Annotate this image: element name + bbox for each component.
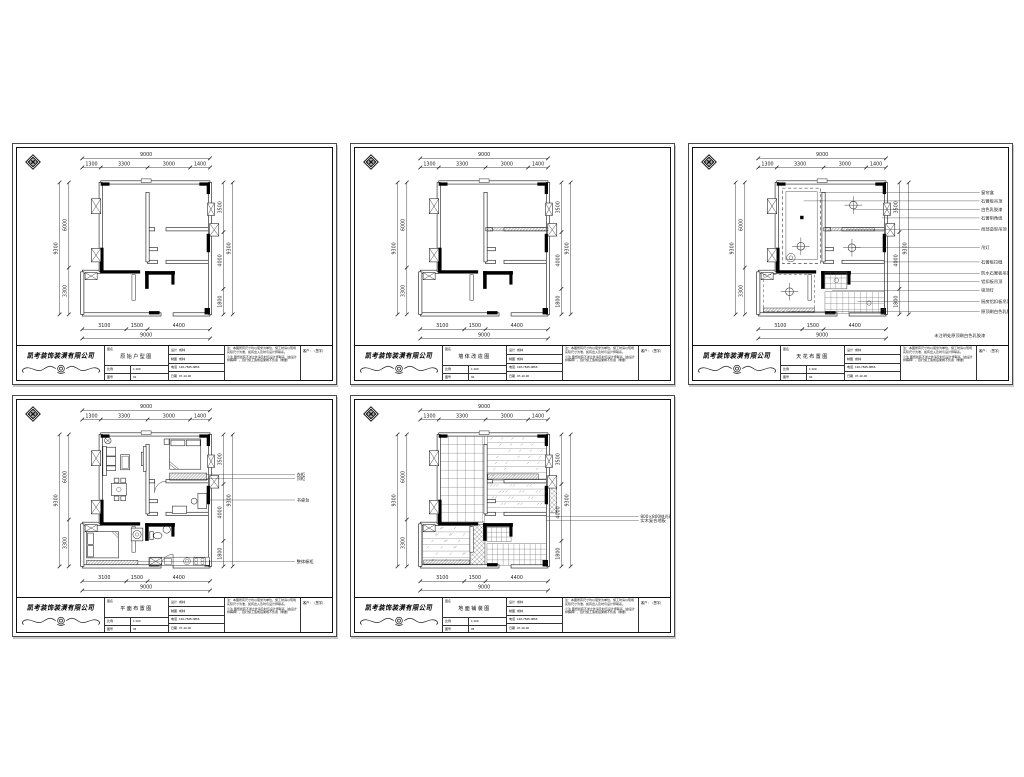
sheet-no-value: 01 [131, 374, 168, 381]
date-value: 07-10-30 [179, 374, 191, 378]
svg-text:9300: 9300 [53, 242, 59, 254]
date-label: 日期 [509, 374, 515, 378]
info-fields-cell: 设计成林 制图成林 电话130-7845-0866 日期07-10-30 [507, 346, 563, 380]
svg-text:1400: 1400 [532, 413, 544, 419]
note-line-2: ※注 图纸如有不详之处请及时与设计师联系（由设计师解释），自行施工造成后果概不负… [227, 356, 298, 364]
drawing-title: 天花布置图 [781, 353, 844, 360]
drawing-sheet-2: 1300330030001400900031001500440090006000… [350, 143, 675, 385]
svg-text:4000: 4000 [893, 254, 899, 266]
svg-text:4400: 4400 [173, 575, 185, 581]
phone-value: 130-7845-0866 [179, 365, 199, 369]
svg-text:3000: 3000 [501, 161, 513, 167]
svg-text:整体橱柜: 整体橱柜 [297, 558, 315, 565]
company-name: 凯考装饰装潢有限公司 [365, 603, 433, 613]
sheet-inner-frame: 1300330030001400900031001500440090006000… [354, 147, 671, 381]
svg-text:3300: 3300 [739, 285, 745, 297]
phone-label: 电话 [171, 617, 177, 621]
sheet-no-label: 图号 [105, 374, 131, 381]
sheet-no-value: 05 [469, 626, 506, 633]
svg-text:9300: 9300 [391, 242, 397, 254]
client-sign-cell: 客户：（签字） [977, 346, 1008, 380]
phone-label: 电话 [509, 365, 515, 369]
svg-text:800×800抛光砖: 800×800抛光砖 [640, 513, 670, 520]
client-sign-cell: 客户：（签字） [301, 598, 332, 632]
flourish-ornament-icon [358, 614, 440, 628]
designer-label: 设计 [171, 600, 177, 604]
scale-label: 比例 [105, 618, 131, 625]
svg-text:白色乳胶漆: 白色乳胶漆 [981, 206, 1003, 213]
svg-text:3500: 3500 [217, 453, 223, 465]
scale-value: 1:100 [469, 618, 506, 625]
svg-text:防水石膏板吊顶: 防水石膏板吊顶 [981, 270, 1008, 277]
svg-text:局部造型吊顶: 局部造型吊顶 [981, 226, 1007, 233]
company-cell: 凯考装饰装潢有限公司 [17, 598, 105, 632]
svg-text:9300: 9300 [903, 242, 909, 254]
designer-value: 成林 [517, 600, 523, 604]
svg-text:4400: 4400 [173, 323, 185, 329]
svg-text:1400: 1400 [194, 413, 206, 419]
drawing-name-label: 图名 [107, 599, 113, 603]
svg-text:1800: 1800 [217, 296, 223, 308]
svg-text:6000: 6000 [63, 219, 69, 231]
notes-cell: 注：本图所有尺寸均以毫米为单位，施工时请以现场实际尺寸为准，如有出入及时与设计师… [563, 598, 639, 632]
note-line-2: ※注 图纸如有不详之处请及时与设计师联系（由设计师解释），自行施工造成后果概不负… [565, 356, 636, 364]
info-fields-cell: 设计成林 制图成林 电话130-7845-0866 日期07-10-30 [169, 598, 225, 632]
svg-text:9000: 9000 [478, 584, 490, 590]
drawing-name-label: 图名 [445, 347, 451, 351]
note-line-2: ※注 图纸如有不详之处请及时与设计师联系（由设计师解释），自行施工造成后果概不负… [903, 356, 974, 364]
flourish-ornament-icon [358, 362, 440, 376]
designer-value: 成林 [855, 348, 861, 352]
scale-label: 比例 [105, 366, 131, 373]
date-value: 07-10-30 [517, 374, 529, 378]
title-block: 凯考装饰装潢有限公司 图名 [17, 345, 332, 380]
drawing-title: 原始户型图 [105, 353, 168, 360]
drawing-name-cell: 图名 天花布置图 比例 1:100 图号 03 [781, 346, 845, 380]
drafter-label: 制图 [171, 357, 177, 361]
svg-text:3300: 3300 [456, 161, 468, 167]
svg-text:铝扣板吊顶: 铝扣板吊顶 [981, 278, 1003, 285]
svg-text:9000: 9000 [478, 404, 490, 410]
drafter-value: 成林 [179, 357, 185, 361]
company-cell: 凯考装饰装潢有限公司 [17, 346, 105, 380]
drawing-name-label: 图名 [107, 347, 113, 351]
client-sign-cell: 客户：（签字） [639, 346, 670, 380]
svg-text:原顶刷白色乳胶漆: 原顶刷白色乳胶漆 [981, 308, 1008, 315]
svg-text:1800: 1800 [555, 548, 561, 560]
drawing-name-cell: 图名 原始户型图 比例 1:100 图号 01 [105, 346, 169, 380]
sheet-inner-frame: 1300330030001400900031001500440090006000… [16, 147, 333, 381]
svg-text:石膏板拉缝: 石膏板拉缝 [981, 258, 1003, 265]
drawing-sheet-1: 1300330030001400900031001500440090006000… [12, 143, 337, 385]
company-name: 凯考装饰装潢有限公司 [27, 603, 95, 613]
svg-text:3300: 3300 [63, 285, 69, 297]
svg-text:3100: 3100 [774, 323, 786, 329]
svg-text:3000: 3000 [163, 161, 175, 167]
svg-text:1300: 1300 [423, 161, 435, 167]
svg-text:1300: 1300 [761, 161, 773, 167]
phone-value: 130-7845-0866 [517, 617, 537, 621]
title-block: 凯考装饰装潢有限公司 图名 [355, 345, 670, 380]
svg-text:9300: 9300 [565, 494, 571, 506]
scale-label: 比例 [781, 366, 807, 373]
drawing-title: 地面铺装图 [443, 605, 506, 612]
notes-cell: 注：本图所有尺寸均以毫米为单位，施工时请以现场实际尺寸为准，如有出入及时与设计师… [225, 598, 301, 632]
svg-text:石膏板吊顶: 石膏板吊顶 [981, 197, 1003, 204]
svg-text:1800: 1800 [217, 548, 223, 560]
drawing-set-canvas: 1300330030001400900031001500440090006000… [0, 0, 1024, 777]
svg-text:3500: 3500 [555, 201, 561, 213]
company-name: 凯考装饰装潢有限公司 [703, 351, 771, 361]
svg-text:1500: 1500 [807, 323, 819, 329]
phone-label: 电话 [509, 617, 515, 621]
scale-value: 1:100 [131, 366, 168, 373]
scale-value: 1:100 [469, 366, 506, 373]
svg-text:9300: 9300 [391, 494, 397, 506]
designer-value: 成林 [517, 348, 523, 352]
date-label: 日期 [847, 374, 853, 378]
phone-label: 电话 [171, 365, 177, 369]
svg-text:9300: 9300 [227, 494, 233, 506]
designer-label: 设计 [847, 348, 853, 352]
drawing-title: 墙体改造图 [443, 353, 506, 360]
svg-text:6000: 6000 [739, 219, 745, 231]
svg-text:3500: 3500 [555, 453, 561, 465]
svg-text:1500: 1500 [469, 575, 481, 581]
info-fields-cell: 设计成林 制图成林 电话130-7845-0866 日期07-10-30 [507, 598, 563, 632]
title-block: 凯考装饰装潢有限公司 图名 [17, 597, 332, 632]
drafter-label: 制图 [171, 609, 177, 613]
note-line-1: 注：本图所有尺寸均以毫米为单位，施工时请以现场实际尺寸为准，如有出入及时与设计师… [565, 599, 636, 607]
note-line-1: 注：本图所有尺寸均以毫米为单位，施工时请以现场实际尺寸为准，如有出入及时与设计师… [565, 347, 636, 355]
svg-text:1400: 1400 [532, 161, 544, 167]
svg-text:书桌台: 书桌台 [297, 496, 310, 503]
title-block: 凯考装饰装潢有限公司 图名 [693, 345, 1008, 380]
designer-value: 成林 [179, 348, 185, 352]
drawing-name-label: 图名 [445, 599, 451, 603]
note-line-1: 注：本图所有尺寸均以毫米为单位，施工时请以现场实际尺寸为准，如有出入及时与设计师… [227, 347, 298, 355]
svg-text:1500: 1500 [131, 575, 143, 581]
svg-text:9000: 9000 [478, 332, 490, 338]
svg-text:9300: 9300 [565, 242, 571, 254]
client-sign-cell: 客户：（签字） [639, 598, 670, 632]
title-block: 凯考装饰装潢有限公司 图名 [355, 597, 670, 632]
svg-text:未注明处原顶刷白色乳胶漆: 未注明处原顶刷白色乳胶漆 [934, 332, 986, 339]
company-cell: 凯考装饰装潢有限公司 [355, 598, 443, 632]
notes-cell: 注：本图所有尺寸均以毫米为单位，施工时请以现场实际尺寸为准，如有出入及时与设计师… [901, 346, 977, 380]
svg-text:3000: 3000 [839, 161, 851, 167]
svg-text:1500: 1500 [469, 323, 481, 329]
company-cell: 凯考装饰装潢有限公司 [693, 346, 781, 380]
drawing-name-cell: 图名 地面铺装图 比例 1:100 图号 05 [443, 598, 507, 632]
svg-text:3100: 3100 [436, 575, 448, 581]
date-value: 07-10-30 [517, 626, 529, 630]
svg-text:4400: 4400 [511, 323, 523, 329]
sheet-no-label: 图号 [105, 626, 131, 633]
svg-text:1300: 1300 [423, 413, 435, 419]
svg-text:6000: 6000 [401, 219, 407, 231]
svg-text:3100: 3100 [98, 575, 110, 581]
designer-value: 成林 [179, 600, 185, 604]
svg-text:9300: 9300 [729, 242, 735, 254]
floor-plan: 1300330030001400900031001500440090006000… [355, 148, 670, 346]
svg-text:6000: 6000 [401, 471, 407, 483]
svg-text:9000: 9000 [478, 152, 490, 158]
scale-label: 比例 [443, 618, 469, 625]
svg-text:9000: 9000 [140, 332, 152, 338]
sheet-inner-frame: 1300330030001400900031001500440090006000… [16, 399, 333, 633]
floor-plan: 1300330030001400900031001500440090006000… [17, 148, 332, 346]
svg-text:1500: 1500 [131, 323, 143, 329]
scale-value: 1:100 [807, 366, 844, 373]
flourish-ornament-icon [696, 362, 778, 376]
svg-text:3300: 3300 [401, 285, 407, 297]
date-label: 日期 [171, 374, 177, 378]
date-value: 07-10-30 [855, 374, 867, 378]
company-name: 凯考装饰装潢有限公司 [365, 351, 433, 361]
svg-text:9300: 9300 [53, 494, 59, 506]
svg-text:4000: 4000 [217, 506, 223, 518]
date-label: 日期 [509, 626, 515, 630]
note-line-2: ※注 图纸如有不详之处请及时与设计师联系（由设计师解释），自行施工造成后果概不负… [565, 608, 636, 616]
floor-plan: 1300330030001400900031001500440090006000… [17, 400, 332, 598]
company-cell: 凯考装饰装潢有限公司 [355, 346, 443, 380]
svg-text:吊灯: 吊灯 [981, 244, 990, 251]
svg-text:9000: 9000 [816, 152, 828, 158]
drawing-sheet-3: 1300330030001400900031001500440090006000… [688, 143, 1013, 385]
svg-text:4400: 4400 [511, 575, 523, 581]
info-fields-cell: 设计成林 制图成林 电话130-7845-0866 日期07-10-30 [169, 346, 225, 380]
designer-label: 设计 [509, 348, 515, 352]
drawing-name-cell: 图名 平面布置图 比例 1:100 图号 04 [105, 598, 169, 632]
notes-cell: 注：本图所有尺寸均以毫米为单位，施工时请以现场实际尺寸为准，如有出入及时与设计师… [563, 346, 639, 380]
svg-text:3500: 3500 [893, 201, 899, 213]
svg-text:4000: 4000 [555, 254, 561, 266]
sheet-no-label: 图号 [443, 374, 469, 381]
svg-text:1300: 1300 [85, 413, 97, 419]
svg-text:3300: 3300 [118, 413, 130, 419]
notes-cell: 注：本图所有尺寸均以毫米为单位，施工时请以现场实际尺寸为准，如有出入及时与设计师… [225, 346, 301, 380]
client-sign-cell: 客户：（签字） [301, 346, 332, 380]
note-line-1: 注：本图所有尺寸均以毫米为单位，施工时请以现场实际尺寸为准，如有出入及时与设计师… [903, 347, 974, 355]
sheet-no-label: 图号 [443, 626, 469, 633]
scale-value: 1:100 [131, 618, 168, 625]
drafter-label: 制图 [509, 609, 515, 613]
sheet-no-value: 02 [469, 374, 506, 381]
note-line-1: 注：本图所有尺寸均以毫米为单位，施工时请以现场实际尺寸为准，如有出入及时与设计师… [227, 599, 298, 607]
drawing-sheet-4: 1300330030001400900031001500440090006000… [12, 395, 337, 637]
phone-label: 电话 [847, 365, 853, 369]
designer-label: 设计 [509, 600, 515, 604]
svg-text:3300: 3300 [63, 537, 69, 549]
flourish-ornament-icon [20, 614, 102, 628]
designer-label: 设计 [171, 348, 177, 352]
svg-text:吸顶灯: 吸顶灯 [981, 287, 995, 294]
drawing-title: 平面布置图 [105, 605, 168, 612]
phone-value: 130-7845-0866 [179, 617, 199, 621]
drafter-value: 成林 [855, 357, 861, 361]
date-label: 日期 [171, 626, 177, 630]
svg-text:3000: 3000 [163, 413, 175, 419]
sheet-inner-frame: 1300330030001400900031001500440090006000… [692, 147, 1009, 381]
svg-text:9000: 9000 [140, 152, 152, 158]
svg-text:3000: 3000 [501, 413, 513, 419]
svg-text:1400: 1400 [870, 161, 882, 167]
floor-plan: 1300330030001400900031001500440090006000… [693, 148, 1008, 346]
drawing-sheet-5: 1300330030001400900031001500440090006000… [350, 395, 675, 637]
note-line-2: ※注 图纸如有不详之处请及时与设计师联系（由设计师解释），自行施工造成后果概不负… [227, 608, 298, 616]
svg-text:3300: 3300 [456, 413, 468, 419]
svg-text:厨房铝扣板吊顶: 厨房铝扣板吊顶 [981, 298, 1008, 305]
svg-text:4400: 4400 [849, 323, 861, 329]
svg-text:1800: 1800 [555, 296, 561, 308]
svg-text:1300: 1300 [85, 161, 97, 167]
svg-text:石膏阴角线: 石膏阴角线 [981, 214, 1003, 221]
scale-label: 比例 [443, 366, 469, 373]
svg-text:窗帘盒: 窗帘盒 [981, 189, 995, 196]
svg-text:6000: 6000 [63, 471, 69, 483]
svg-text:衣柜: 衣柜 [297, 471, 306, 478]
phone-value: 130-7845-0866 [517, 365, 537, 369]
svg-text:3100: 3100 [98, 323, 110, 329]
sheet-no-value: 04 [131, 626, 168, 633]
svg-text:3300: 3300 [118, 161, 130, 167]
company-name: 凯考装饰装潢有限公司 [27, 351, 95, 361]
svg-text:3500: 3500 [217, 201, 223, 213]
svg-text:1400: 1400 [194, 161, 206, 167]
sheet-no-value: 03 [807, 374, 844, 381]
drafter-label: 制图 [847, 357, 853, 361]
sheet-no-label: 图号 [781, 374, 807, 381]
svg-text:3300: 3300 [401, 537, 407, 549]
floor-plan: 1300330030001400900031001500440090006000… [355, 400, 670, 598]
drafter-value: 成林 [179, 609, 185, 613]
date-value: 07-10-30 [179, 626, 191, 630]
svg-text:4000: 4000 [217, 254, 223, 266]
svg-text:3300: 3300 [794, 161, 806, 167]
drawing-name-label: 图名 [783, 347, 789, 351]
phone-value: 130-7845-0866 [855, 365, 875, 369]
drafter-value: 成林 [517, 609, 523, 613]
info-fields-cell: 设计成林 制图成林 电话130-7845-0866 日期07-10-30 [845, 346, 901, 380]
drawing-name-cell: 图名 墙体改造图 比例 1:100 图号 02 [443, 346, 507, 380]
svg-text:9000: 9000 [816, 332, 828, 338]
sheet-inner-frame: 1300330030001400900031001500440090006000… [354, 399, 671, 633]
svg-text:9000: 9000 [140, 404, 152, 410]
drafter-value: 成林 [517, 357, 523, 361]
svg-text:9000: 9000 [140, 584, 152, 590]
flourish-ornament-icon [20, 362, 102, 376]
svg-text:9300: 9300 [227, 242, 233, 254]
drafter-label: 制图 [509, 357, 515, 361]
svg-text:3100: 3100 [436, 323, 448, 329]
